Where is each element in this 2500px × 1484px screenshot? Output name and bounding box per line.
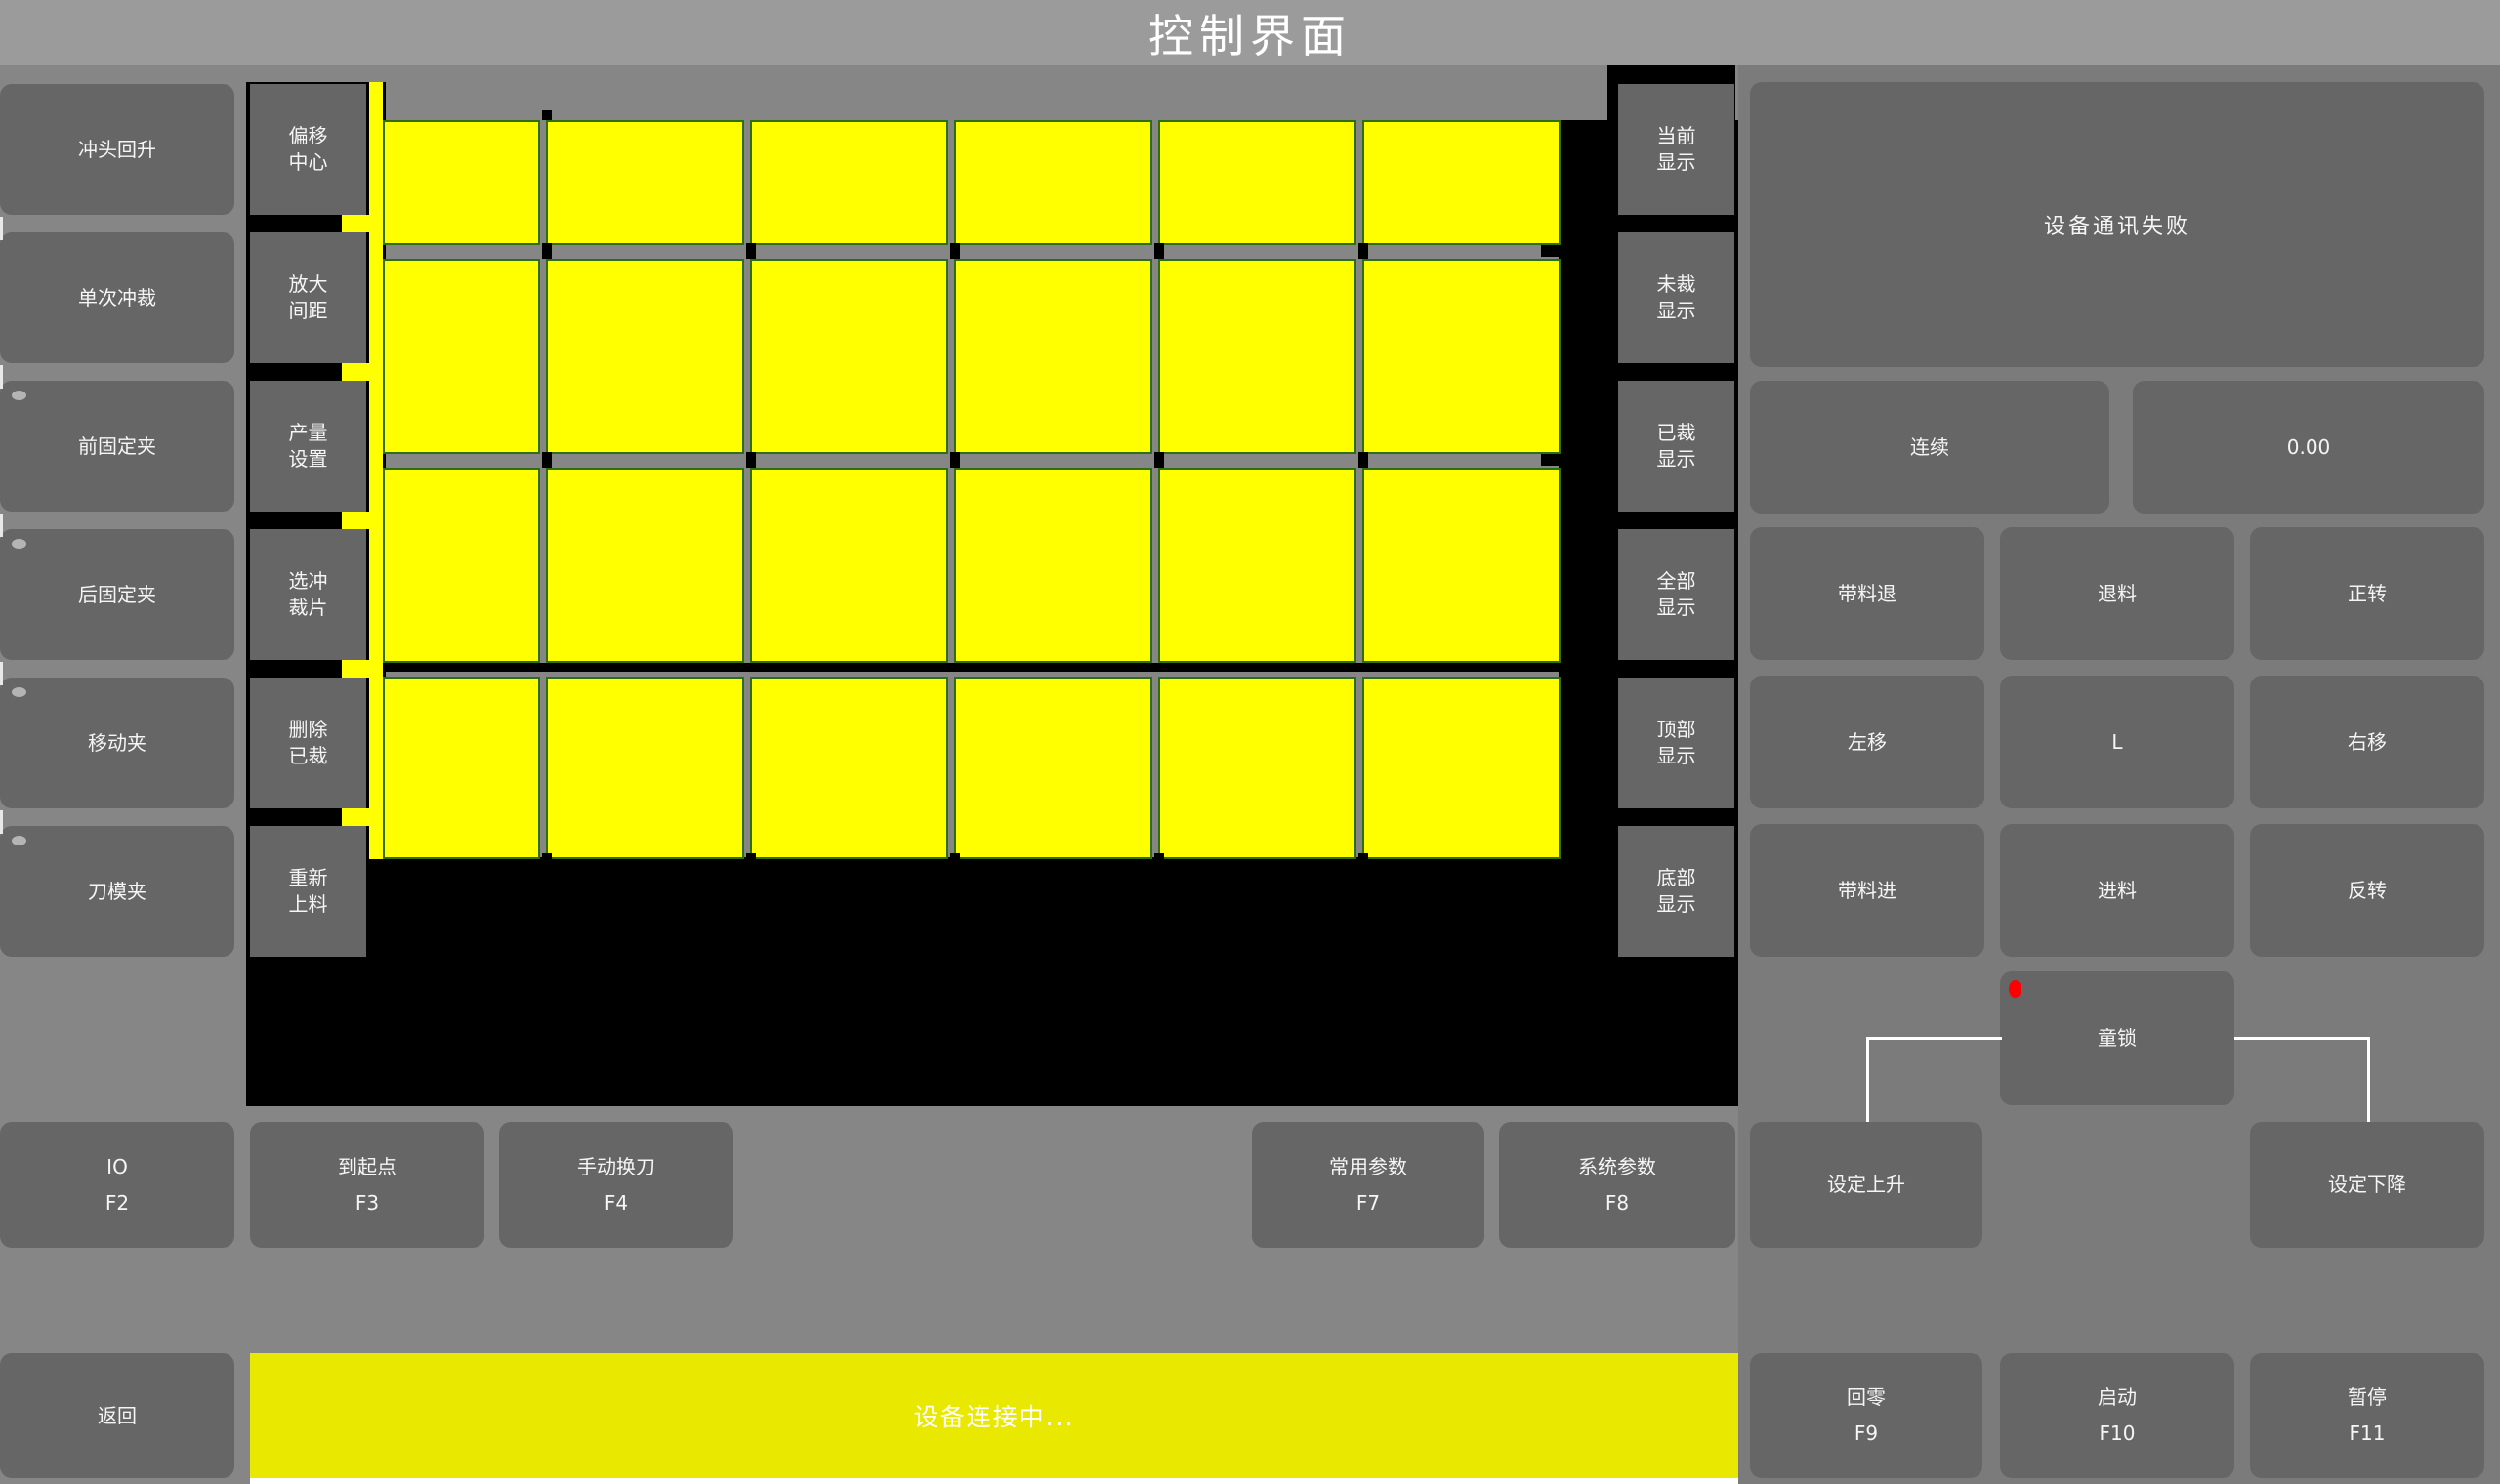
canvas-bottom-black: [246, 857, 1738, 1106]
title-bar: 控制界面: [0, 0, 2500, 65]
cut-mark-tick: [950, 243, 960, 259]
fn-key-f7[interactable]: 常用参数F7: [1252, 1122, 1484, 1248]
material-piece-r4c6[interactable]: [1362, 677, 1561, 859]
bottom-key-f9[interactable]: 回零F9: [1750, 1353, 1982, 1478]
jog-button-8[interactable]: 进料: [2000, 824, 2234, 957]
tool-button-2[interactable]: 放大间距: [250, 232, 366, 363]
cut-mark-tick: [542, 243, 552, 259]
left-edge-tick: [0, 514, 3, 537]
connector-line-right-h: [2234, 1037, 2370, 1040]
material-edge-strip: [369, 82, 383, 859]
material-piece-r3c3[interactable]: [750, 468, 948, 663]
left-button-3[interactable]: 前固定夹: [0, 381, 234, 512]
material-piece-r3c5[interactable]: [1158, 468, 1356, 663]
material-piece-r2c3[interactable]: [750, 259, 948, 454]
set-fall-button[interactable]: 设定下降: [2250, 1122, 2484, 1248]
cut-mark-tick: [1358, 452, 1368, 468]
tool-button-1[interactable]: 偏移中心: [250, 84, 366, 215]
jog-button-4[interactable]: 左移: [1750, 676, 1984, 808]
material-piece-r1c1[interactable]: [383, 120, 540, 245]
tool-button-5[interactable]: 删除已裁: [250, 678, 366, 808]
child-lock-alert-dot: [2009, 980, 2021, 998]
bottom-key-f10[interactable]: 启动F10: [2000, 1353, 2234, 1478]
connector-line-left-v: [1866, 1037, 1869, 1125]
display-button-1[interactable]: 当前显示: [1618, 84, 1734, 215]
material-piece-r1c6[interactable]: [1362, 120, 1561, 245]
material-piece-r4c5[interactable]: [1158, 677, 1356, 859]
cut-mark-tick: [542, 853, 552, 867]
left-edge-tick: [0, 365, 3, 389]
left-button-5[interactable]: 移动夹: [0, 678, 234, 808]
fn-key-f2[interactable]: IOF2: [0, 1122, 234, 1248]
cut-mark-tick: [746, 853, 756, 867]
left-button-4[interactable]: 后固定夹: [0, 529, 234, 660]
cut-mark-tick: [1154, 853, 1164, 867]
fn-key-f4[interactable]: 手动换刀F4: [499, 1122, 733, 1248]
tool-button-3[interactable]: 产量设置: [250, 381, 366, 512]
display-button-5[interactable]: 顶部显示: [1618, 678, 1734, 808]
fn-key-f8[interactable]: 系统参数F8: [1499, 1122, 1735, 1248]
material-piece-r2c5[interactable]: [1158, 259, 1356, 454]
gap-strip: [342, 215, 369, 232]
gap-strip: [342, 512, 369, 529]
page-title: 控制界面: [1148, 1, 1352, 65]
left-edge-tick: [0, 217, 3, 240]
left-button-6[interactable]: 刀模夹: [0, 826, 234, 957]
cut-mark-tick: [1154, 452, 1164, 468]
gap-strip: [342, 363, 369, 381]
material-piece-r4c3[interactable]: [750, 677, 948, 859]
connection-status-bar: 设备连接中...: [250, 1353, 1738, 1478]
clamp-indicator-dot: [12, 391, 26, 400]
cut-mark-tick: [1358, 243, 1368, 259]
value-readout: 0.00: [2287, 434, 2331, 461]
material-piece-r1c2[interactable]: [546, 120, 744, 245]
fn-key-f3[interactable]: 到起点F3: [250, 1122, 484, 1248]
jog-button-9[interactable]: 反转: [2250, 824, 2484, 957]
device-status-panel: 设备通讯失败: [1750, 82, 2484, 367]
jog-button-3[interactable]: 正转: [2250, 527, 2484, 660]
child-lock-button[interactable]: 童锁: [2000, 971, 2234, 1105]
left-edge-tick: [0, 662, 3, 685]
material-piece-r1c4[interactable]: [954, 120, 1152, 245]
mode-button[interactable]: 连续: [1750, 381, 2109, 514]
connector-line-right-v: [2367, 1037, 2370, 1125]
clamp-indicator-dot: [12, 687, 26, 697]
tool-button-6[interactable]: 重新上料: [250, 826, 366, 957]
material-piece-r2c1[interactable]: [383, 259, 540, 454]
display-button-4[interactable]: 全部显示: [1618, 529, 1734, 660]
material-piece-r1c5[interactable]: [1158, 120, 1356, 245]
bottom-key-f11[interactable]: 暂停F11: [2250, 1353, 2484, 1478]
cut-mark-tick: [542, 110, 552, 120]
clamp-indicator-dot: [12, 836, 26, 845]
material-piece-r2c2[interactable]: [546, 259, 744, 454]
jog-button-1[interactable]: 带料退: [1750, 527, 1984, 660]
cut-mark-tick: [542, 452, 552, 468]
left-button-1[interactable]: 冲头回升: [0, 84, 234, 215]
cut-mark-tick: [746, 243, 756, 259]
cut-mark-tick: [746, 452, 756, 468]
material-piece-r2c6[interactable]: [1362, 259, 1561, 454]
value-display-button[interactable]: 0.00: [2133, 381, 2484, 514]
back-button[interactable]: 返回: [0, 1353, 234, 1478]
gap-strip: [342, 660, 369, 678]
cut-mark-tick: [950, 853, 960, 867]
display-button-2[interactable]: 未裁显示: [1618, 232, 1734, 363]
set-rise-button[interactable]: 设定上升: [1750, 1122, 1982, 1248]
material-piece-r3c2[interactable]: [546, 468, 744, 663]
jog-button-5[interactable]: L: [2000, 676, 2234, 808]
connector-line-left-h: [1867, 1037, 2002, 1040]
cut-mark-tick: [1154, 243, 1164, 259]
material-piece-r1c3[interactable]: [750, 120, 948, 245]
material-piece-r3c6[interactable]: [1362, 468, 1561, 663]
left-button-2[interactable]: 单次冲裁: [0, 232, 234, 363]
material-piece-r2c4[interactable]: [954, 259, 1152, 454]
cut-mark-tick: [1541, 454, 1561, 466]
cut-mark-tick: [950, 452, 960, 468]
cut-mark-tick: [1541, 245, 1561, 257]
display-button-6[interactable]: 底部显示: [1618, 826, 1734, 957]
cut-pieces-grid: [383, 120, 1561, 859]
clamp-indicator-dot: [12, 539, 26, 549]
connection-status-text: 设备连接中...: [914, 1398, 1075, 1433]
row-separator-bar: [383, 663, 1561, 672]
device-status-message: 设备通讯失败: [2044, 209, 2190, 240]
jog-button-6[interactable]: 右移: [2250, 676, 2484, 808]
material-piece-r3c4[interactable]: [954, 468, 1152, 663]
material-piece-r4c1[interactable]: [383, 677, 540, 859]
gap-strip: [342, 808, 369, 826]
material-piece-r3c1[interactable]: [383, 468, 540, 663]
cut-mark-tick: [1358, 853, 1368, 867]
left-edge-tick: [0, 810, 3, 834]
display-button-3[interactable]: 已裁显示: [1618, 381, 1734, 512]
material-piece-r4c4[interactable]: [954, 677, 1152, 859]
bottom-white-strip: [250, 1478, 1738, 1484]
material-piece-r4c2[interactable]: [546, 677, 744, 859]
tool-button-4[interactable]: 选冲裁片: [250, 529, 366, 660]
jog-button-2[interactable]: 退料: [2000, 527, 2234, 660]
jog-button-7[interactable]: 带料进: [1750, 824, 1984, 957]
